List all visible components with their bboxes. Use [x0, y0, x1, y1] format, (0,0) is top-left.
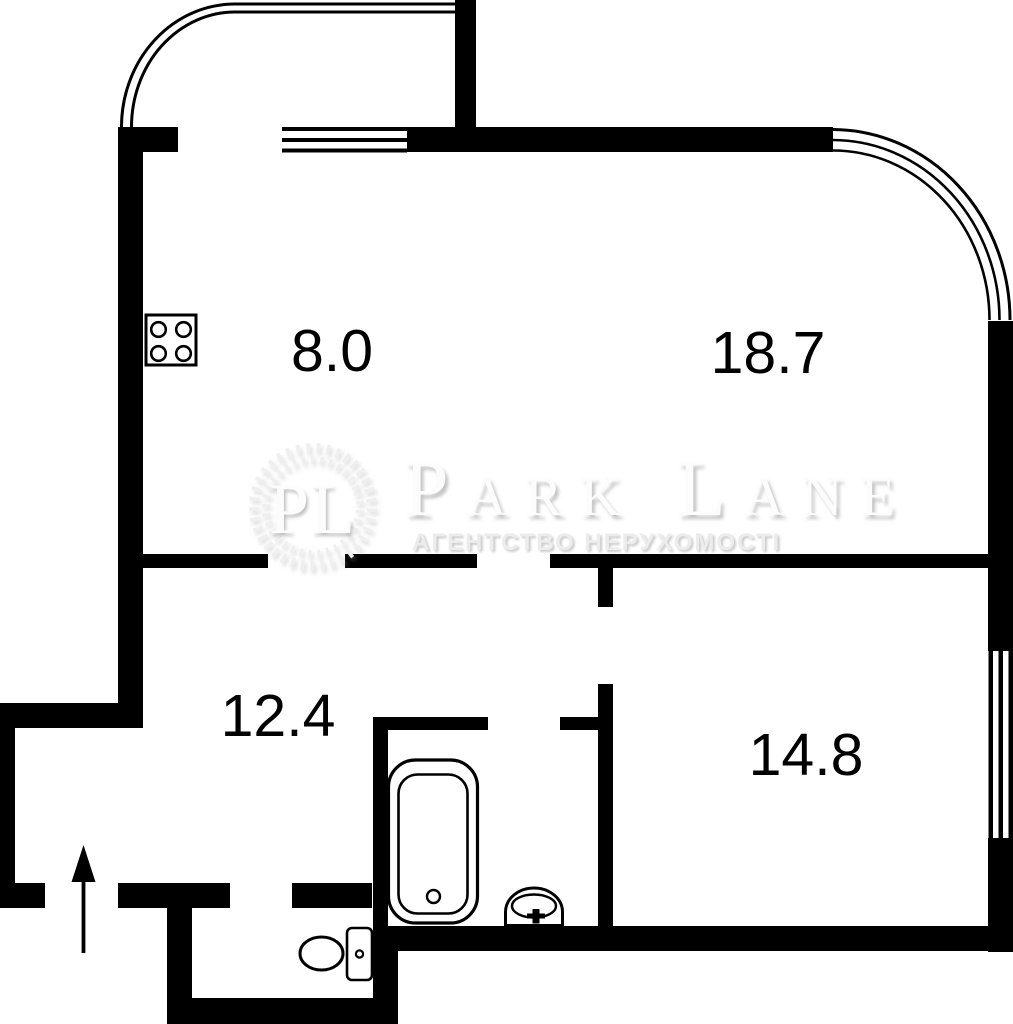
- wall-divider-mid: [345, 554, 477, 568]
- entrance-arrow-shaft: [82, 879, 86, 953]
- window-right: [989, 651, 1013, 838]
- sink-tap-cross: [527, 914, 545, 919]
- window-top-line: [282, 127, 407, 131]
- wall-bath-top-right: [560, 717, 598, 730]
- room-area-label-hallway: 12.4: [221, 682, 336, 750]
- toilet-icon: [300, 928, 372, 980]
- corner-arc-middle: [833, 140, 1000, 320]
- balcony-railing-inner: [132, 12, 456, 127]
- corner-window-arc: [833, 130, 1010, 321]
- stove-icon: [146, 315, 196, 365]
- wall-wc-bottom: [167, 998, 398, 1024]
- room-area-label-bedroom: 14.8: [749, 721, 864, 789]
- entrance-arrow-icon: [72, 845, 96, 953]
- wall-hall-bedroom-upper: [598, 554, 613, 607]
- wall-balcony-divider: [455, 0, 476, 128]
- window-right-line: [1009, 651, 1013, 838]
- wall-vestibule-left: [0, 703, 15, 908]
- wall-vestibule-bottom: [0, 883, 45, 908]
- balcony-railing: [122, 4, 456, 127]
- wall-divider-right: [550, 554, 990, 568]
- wall-wc-top: [292, 883, 372, 908]
- wall-bath-left: [373, 717, 388, 926]
- entrance-arrow-head: [72, 845, 96, 882]
- toilet-button: [356, 950, 363, 957]
- floor-plan-drawing: [0, 0, 1013, 1024]
- bathtub-drain: [427, 890, 440, 903]
- wall-divider-left: [143, 554, 268, 568]
- window-left-line: [989, 651, 994, 838]
- room-area-label-living-room: 18.7: [711, 319, 826, 387]
- sink-icon: [506, 888, 563, 926]
- corner-arc-outer: [833, 130, 1010, 321]
- wall-top-main: [407, 127, 833, 152]
- window-bottom-line: [282, 149, 407, 153]
- wall-vestibule-top: [0, 703, 143, 728]
- floor-plan: 8.0 18.7 12.4 14.8 PL Park Lane АГЕНТСТВ…: [0, 0, 1013, 1024]
- window-mid-line: [282, 138, 407, 142]
- wall-bottom: [373, 926, 1013, 951]
- wall-right-upper: [988, 321, 1013, 651]
- toilet-bowl: [300, 937, 343, 970]
- window-top: [282, 127, 407, 153]
- wall-left: [118, 127, 143, 705]
- wall-hall-bedroom-lower: [598, 684, 613, 926]
- wall-bath-top-left: [388, 717, 488, 730]
- balcony-railing-outer: [122, 4, 456, 127]
- room-area-label-kitchen: 8.0: [291, 317, 373, 385]
- bathtub-icon: [389, 760, 478, 923]
- corner-arc-inner: [833, 151, 990, 321]
- window-mid-line: [999, 651, 1004, 838]
